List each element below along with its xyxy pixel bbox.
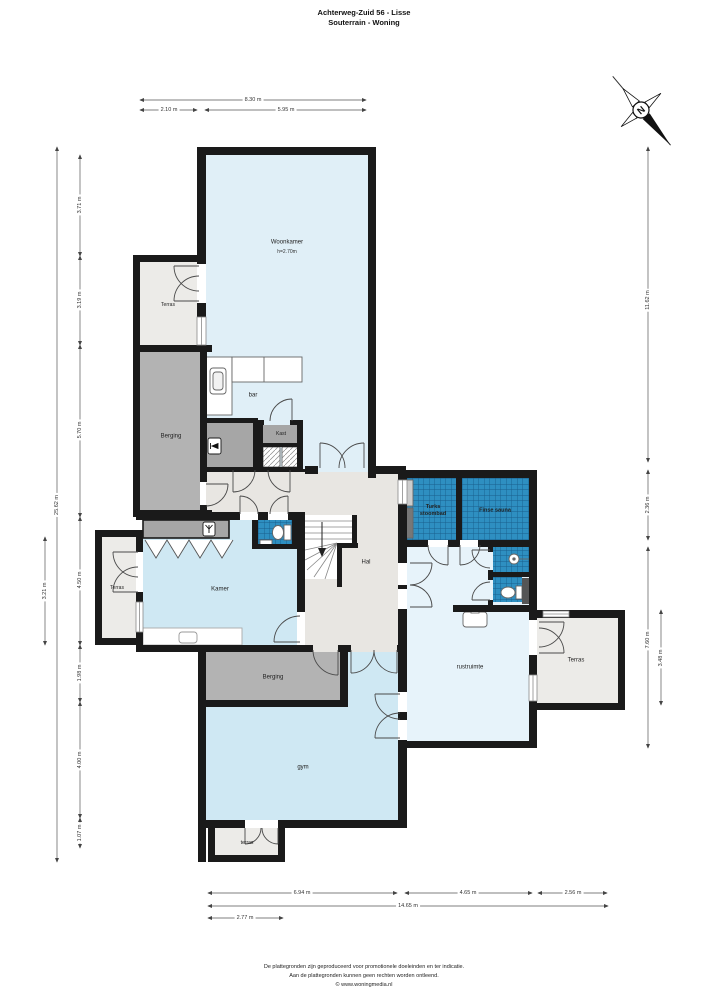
wardrobe-box-1	[263, 447, 280, 467]
dim-bottom-left: 6.94 m	[292, 890, 313, 896]
room-label-terras-bottom: terras	[241, 840, 254, 846]
dim-right-upper: 11.62 m	[645, 288, 651, 311]
room-note-woonkamer: h=2.70m	[277, 249, 297, 255]
dim-left-seg7: 1.07 m	[77, 823, 83, 844]
kamer-sink	[179, 632, 197, 643]
room-label-berging-mid: Berging	[161, 433, 182, 441]
compass: N	[593, 60, 691, 162]
dim-bottom-terras: 2.77 m	[235, 915, 256, 921]
page-title-line1: Achterweg-Zuid 56 - Lisse	[318, 8, 411, 17]
floorplan-page: N Achterweg-Zuid 56 - Lisse Souterrain -…	[0, 0, 707, 1000]
dim-left-seg5: 1.98 m	[77, 663, 83, 684]
room-label-hal: Hal	[361, 559, 370, 567]
window-kamer-terras	[136, 602, 143, 632]
window-terras-top	[197, 317, 206, 345]
footer-line3: © www.woningmedia.nl	[336, 982, 393, 988]
room-label-woonkamer: Woonkamer	[271, 239, 303, 247]
toilet1-tank	[284, 525, 291, 540]
window-terras-right-side	[529, 675, 537, 701]
dim-bottom-middle: 4.65 m	[458, 890, 479, 896]
room-berging-mid-area	[140, 352, 200, 510]
bar-sink-basin	[213, 372, 223, 390]
toilet2-tank	[516, 586, 522, 599]
room-label-rustruimte: rustruimte	[457, 664, 484, 672]
dim-right-lower: 7.60 m	[645, 630, 651, 651]
wardrobe-box-2	[282, 447, 298, 467]
room-label-finse-sauna: Finse sauna	[475, 508, 515, 515]
toilet2-bowl	[501, 587, 515, 598]
dim-left-seg6: 4.00 m	[77, 750, 83, 771]
dim-left-kamer: 3.21 m	[42, 581, 48, 602]
dim-left-seg1: 3.71 m	[77, 195, 83, 216]
room-label-kamer: Kamer	[211, 586, 229, 594]
dim-left-total: 25.62 m	[54, 493, 60, 517]
room-label-turks-stoombad: Turks stoombad	[413, 504, 453, 518]
dim-top-left: 2.10 m	[159, 107, 180, 113]
dim-bottom-right: 2.56 m	[563, 890, 584, 896]
dim-bottom-total: 14.65 m	[396, 903, 420, 909]
dim-left-seg2: 3.19 m	[77, 290, 83, 311]
toilet1-bowl	[273, 526, 284, 540]
dim-top-total: 8.30 m	[243, 97, 264, 103]
room-label-terras-right: Terras	[568, 657, 585, 665]
dim-left-seg4: 4.50 m	[77, 570, 83, 591]
footer-line2: Aan de plattegronden kunnen geen rechten…	[289, 973, 439, 979]
room-label-terras-top: Terras	[161, 302, 175, 308]
toilet2-cistern	[522, 578, 529, 604]
footer-line1: De plattegronden zijn geproduceerd voor …	[264, 964, 464, 970]
dim-right-inner: 3.48 m	[658, 648, 664, 669]
window-corridor-east	[398, 480, 407, 504]
bar-counter-horizontal	[232, 357, 302, 382]
rustruimte-sink	[463, 612, 487, 627]
room-label-bar: bar	[249, 392, 258, 400]
floor-plan: N	[0, 0, 707, 1000]
dim-left-seg3: 5.70 m	[77, 420, 83, 441]
room-label-berging-bottom: Berging	[263, 674, 284, 682]
kamer-wardrobe	[143, 520, 229, 538]
room-label-kast: Kast	[276, 431, 286, 437]
room-label-gym: gym	[297, 764, 308, 772]
shower-center	[513, 558, 515, 560]
dim-right-middle: 2.36 m	[645, 495, 651, 516]
page-title-line2: Souterrain - Woning	[328, 18, 400, 27]
room-label-terras-kamer: Terras	[110, 585, 124, 591]
dim-top-right: 5.95 m	[276, 107, 297, 113]
sauna-bench	[406, 508, 413, 538]
compass-south-needle	[643, 113, 674, 148]
window-terras-right-top	[543, 611, 569, 617]
